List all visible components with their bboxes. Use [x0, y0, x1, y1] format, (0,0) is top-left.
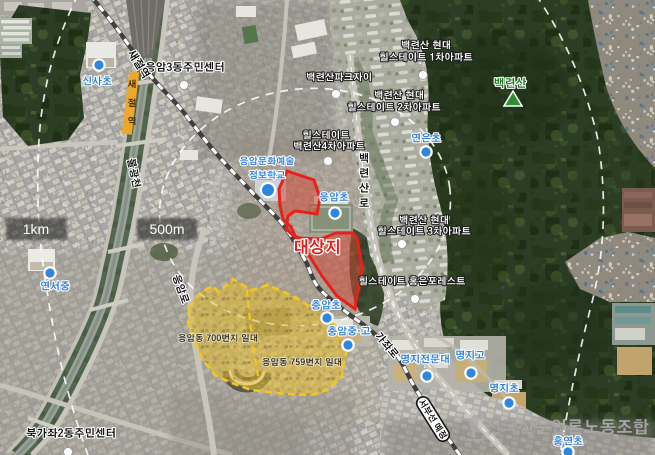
svg-text:1km: 1km — [23, 221, 49, 237]
svg-text:500m: 500m — [149, 221, 184, 237]
